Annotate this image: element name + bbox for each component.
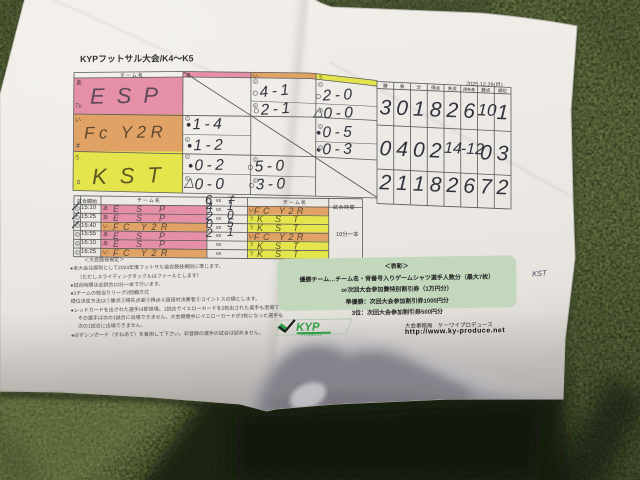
svg-text:KYP: KYP — [296, 321, 320, 333]
